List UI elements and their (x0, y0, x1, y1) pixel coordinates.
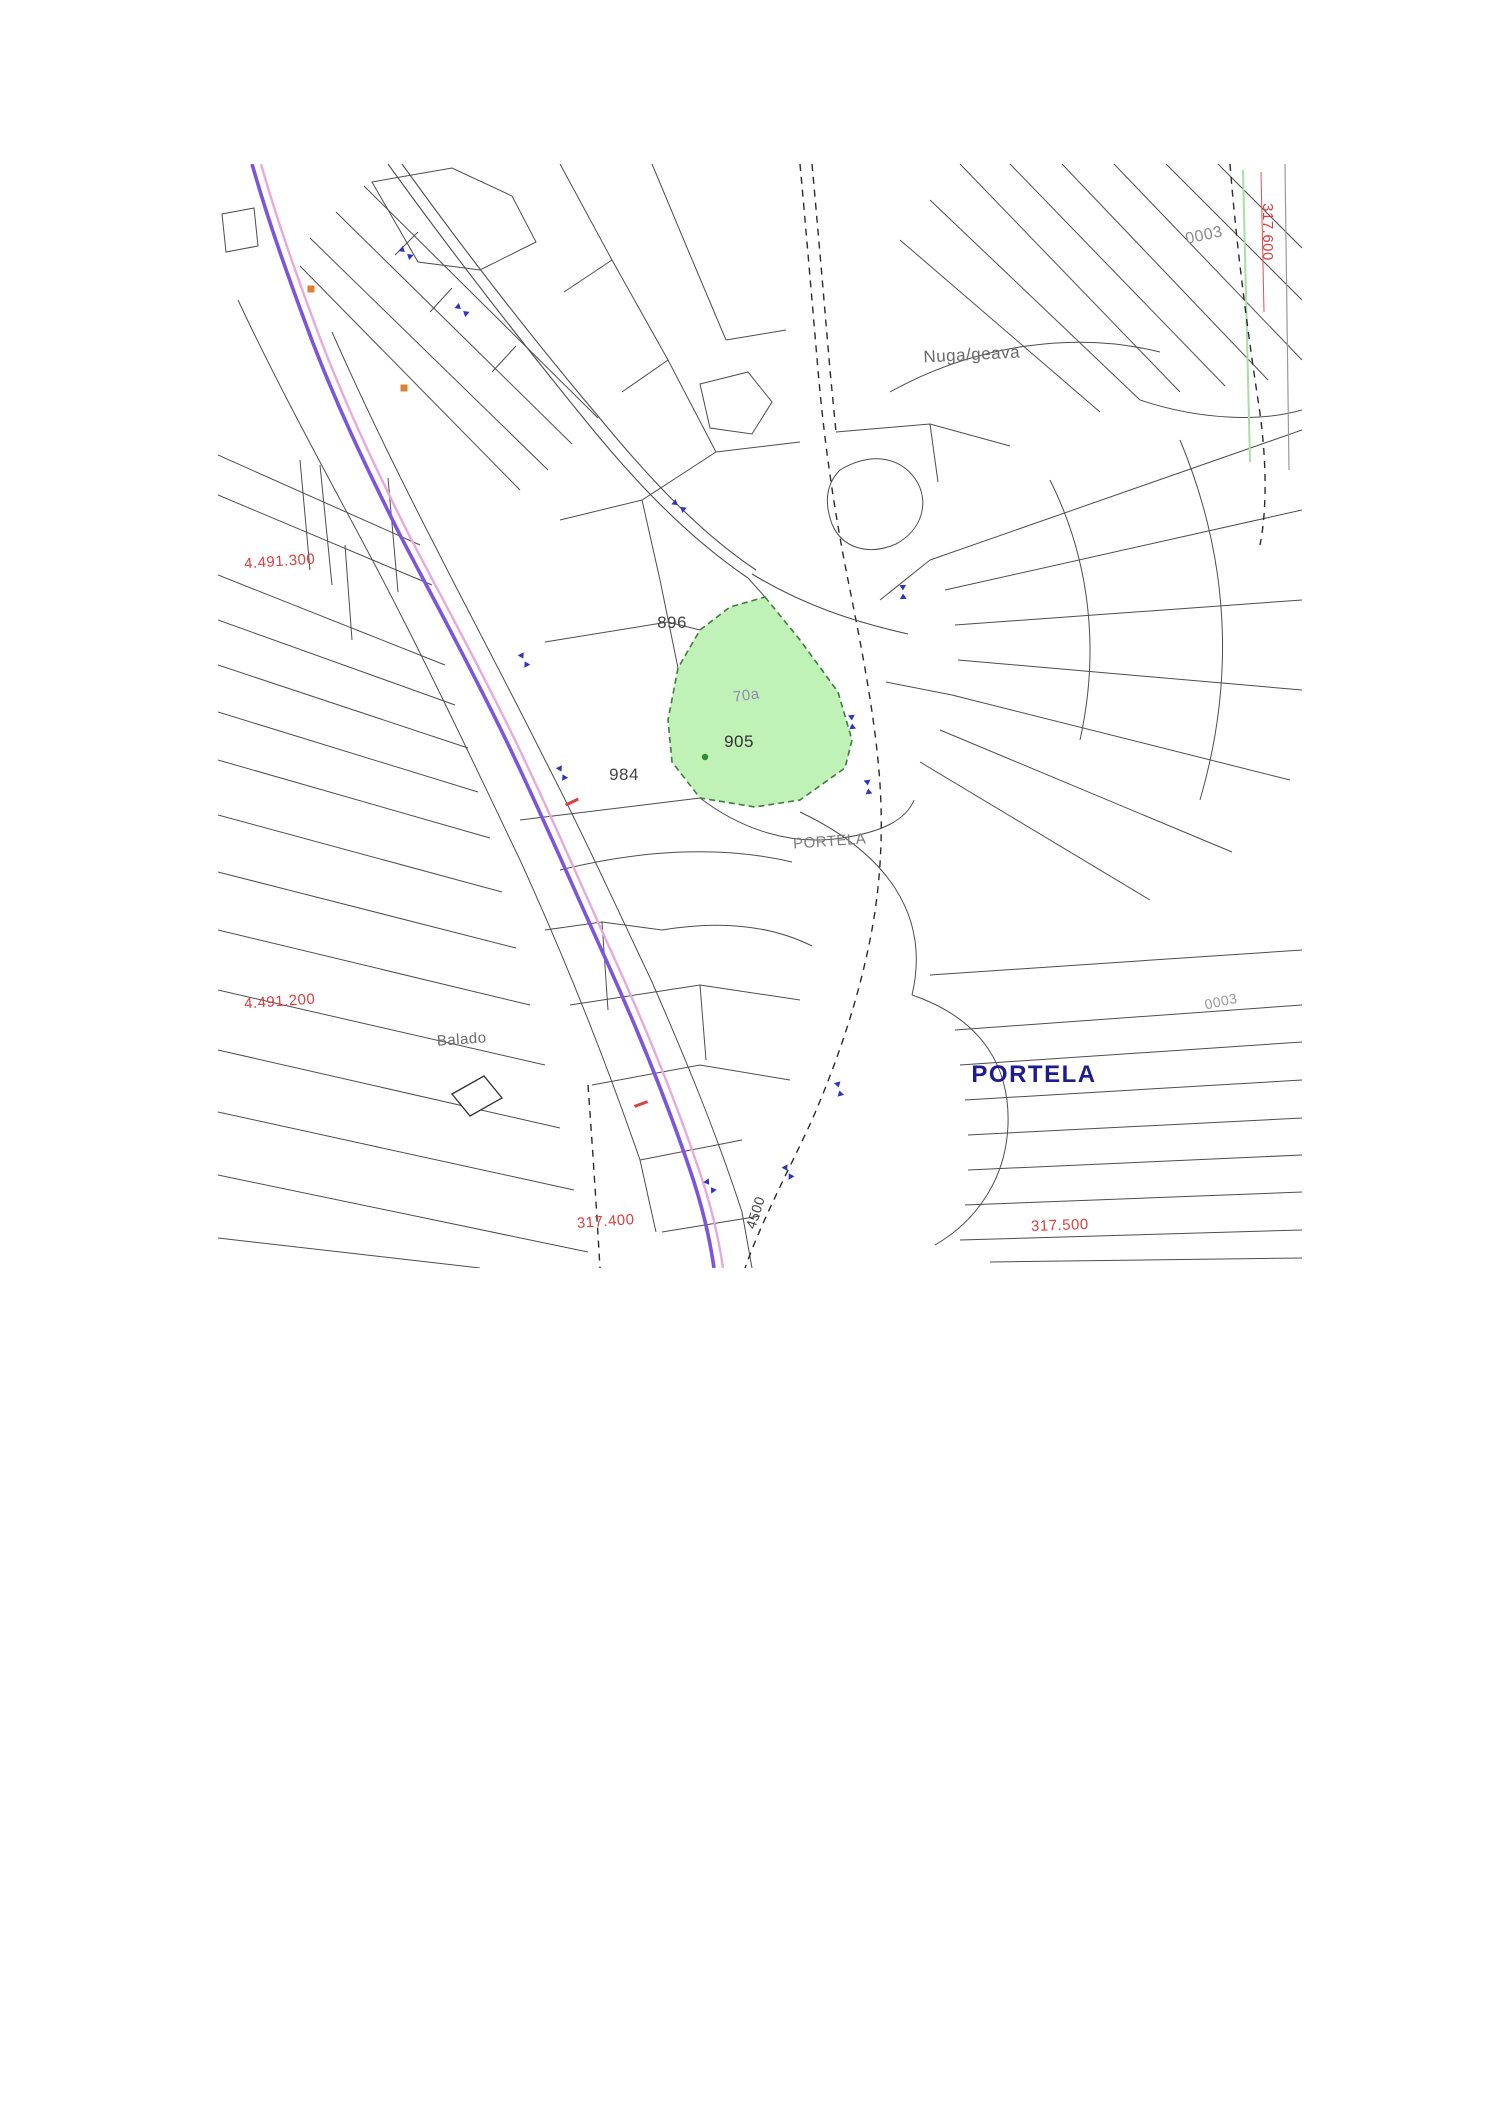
parcel-boundary-line (430, 288, 452, 312)
orange-tick (401, 385, 408, 392)
parcel-boundary-line (545, 922, 662, 930)
parcel-boundary-line (748, 578, 765, 597)
parcel-boundary-line (1180, 440, 1223, 800)
parcel-boundary-line (726, 330, 786, 340)
red-tick (566, 799, 579, 805)
secondary-road-line (388, 164, 748, 578)
flow-direction-marker (454, 303, 469, 317)
orange-tick (308, 286, 315, 293)
parcel-boundary-line (652, 164, 726, 340)
parcel-boundary-line (300, 266, 520, 490)
parcel-boundary-line (564, 260, 612, 292)
flow-direction-marker (834, 1081, 844, 1096)
parcel-boundary-line (218, 665, 468, 748)
parcel-boundary-line (222, 208, 258, 252)
map-label-place-portela: PORTELA (971, 1061, 1096, 1088)
parcel-boundary-line (958, 660, 1302, 690)
parcel-boundary-line (960, 1230, 1302, 1240)
parcel-boundary-line (920, 762, 1150, 900)
dashed-path (588, 1085, 600, 1268)
parcel-boundary-line (662, 925, 812, 946)
map-label-place-portela-small: PORTELA (793, 830, 867, 852)
map-label-parcel-905: 905 (724, 732, 754, 751)
map-label-parcel-0003-top: 0003 (1184, 223, 1224, 247)
parcel-boundary-line (218, 712, 478, 792)
map-label-grid-4491200: 4.491.200 (244, 991, 316, 1013)
buildings-layer (452, 1076, 502, 1116)
parcel-boundary-line (968, 1155, 1302, 1170)
building-footprint (452, 1076, 502, 1116)
parcel-boundary-line (945, 510, 1302, 590)
map-label-parcel-0003-bottom: 0003 (1203, 990, 1239, 1013)
parcel-boundary-line (1050, 480, 1090, 740)
parcel-boundary-line (218, 620, 455, 705)
parcel-boundary-line (218, 1112, 574, 1190)
parcel-boundary-line (716, 442, 800, 452)
flow-direction-marker (782, 1164, 795, 1180)
parcel-boundary-line (836, 424, 1010, 446)
flow-direction-marker (556, 765, 568, 781)
flow-direction-marker (398, 246, 413, 260)
parcel-boundary-line (238, 300, 656, 1232)
parcel-boundary-line (930, 430, 1302, 560)
parcel-boundary-line (700, 372, 772, 434)
secondary-road-line (402, 164, 756, 570)
dashed-path (812, 164, 836, 432)
parcel-boundary-line (218, 1050, 560, 1128)
flow-direction-marker (899, 585, 906, 599)
map-label-parcel-896: 896 (657, 613, 687, 632)
parcel-boundary-line (1010, 164, 1225, 386)
parcel-boundary-line (955, 600, 1302, 625)
parcel-boundary-line (622, 360, 668, 392)
grid-line (1285, 164, 1289, 470)
parcel-boundary-line (940, 730, 1232, 852)
parcel-boundary-line (700, 985, 706, 1060)
parcel-boundary-line (1062, 164, 1268, 380)
flow-direction-marker (848, 715, 856, 730)
parcel-boundary-line (930, 950, 1302, 975)
map-label-parcel-984: 984 (609, 765, 639, 784)
parcel-boundary-line (827, 459, 922, 550)
parcel-boundary-line (880, 560, 930, 600)
parcel-boundary-line (570, 985, 800, 1005)
map-label-road-4500: 4500 (743, 1194, 768, 1230)
parcel-boundary-line (955, 1005, 1302, 1030)
parcel-boundary-line (310, 238, 548, 470)
parcel-boundary-line (364, 186, 598, 418)
parcel-boundary-line (642, 500, 678, 668)
map-label-place-balado: Balado (436, 1029, 487, 1049)
parcel-boundary-line (930, 200, 1140, 400)
parcel-boundary-line (320, 465, 332, 585)
red-tick (634, 1102, 647, 1107)
parcel-boundary-line (990, 1258, 1302, 1262)
map-label-grid-4491300: 4.491.300 (244, 551, 316, 573)
map-canvas: 0003317.600Nuga/geava4.491.30089670a9059… (218, 164, 1302, 1268)
parcel-boundary-line (218, 815, 502, 892)
flow-direction-marker (518, 652, 531, 668)
parcel-boundary-line (218, 575, 445, 665)
parcel-boundary-line (1114, 164, 1302, 360)
parcel-boundary-line (912, 995, 1008, 1245)
secondary-road-layer (388, 164, 908, 634)
parcel-boundary-line (965, 1192, 1302, 1205)
parcel-boundary-line (952, 695, 1290, 780)
flow-direction-marker (864, 780, 873, 795)
parcel-point-marker (702, 754, 708, 760)
map-label-grid-317600: 317.600 (1259, 203, 1276, 261)
map-label-grid-317400: 317.400 (576, 1211, 635, 1232)
parcel-boundary-line (336, 212, 572, 444)
map-label-place-nuga-geava: Nuga/geava (923, 342, 1021, 366)
parcel-boundary-line (218, 1238, 480, 1268)
cadastral-map: 0003317.600Nuga/geava4.491.30089670a9059… (218, 164, 1302, 1268)
parcel-boundary-line (900, 240, 1100, 412)
parcel-boundary-line (560, 164, 716, 452)
map-label-grid-317500: 317.500 (1031, 1216, 1089, 1235)
parcel-boundary-line (1140, 400, 1302, 417)
parcel-boundary-line (968, 1118, 1302, 1135)
parcel-boundary-line (886, 682, 952, 695)
parcel-boundary-line (218, 1175, 588, 1252)
parcel-boundary-line (930, 424, 938, 482)
parcel-boundary-line (492, 346, 516, 372)
parcel-boundary-line (395, 232, 418, 255)
grid-line (1243, 170, 1250, 462)
document-page: 0003317.600Nuga/geava4.491.30089670a9059… (0, 0, 1500, 2121)
